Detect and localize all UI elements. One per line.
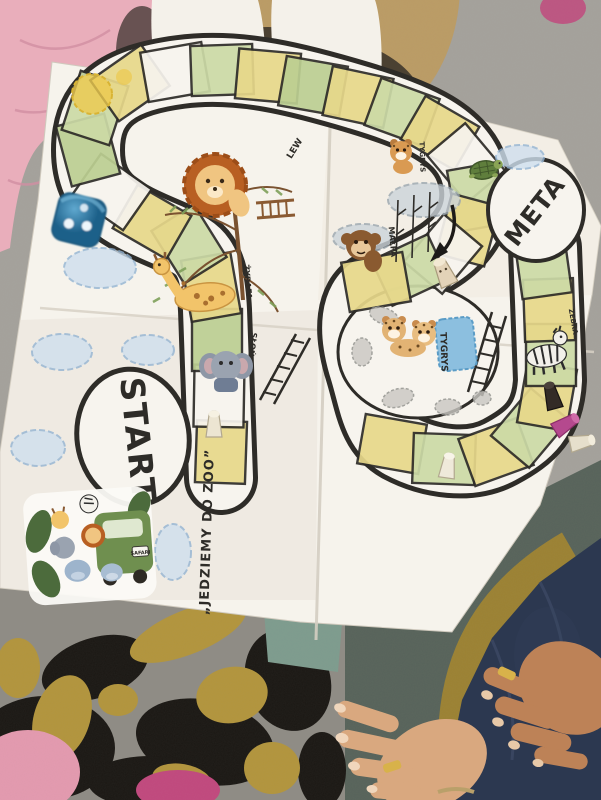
tiger-label: TYGRYS [437, 332, 448, 372]
photo-scene: START META [0, 0, 601, 800]
blue-dice [50, 191, 108, 249]
safari-bus-sticker: SAFARI [17, 485, 162, 606]
tiger-cub-label: TYGRYS [417, 141, 426, 172]
tiger-cub-sticker [390, 139, 413, 174]
meta-circle: META [488, 159, 584, 261]
